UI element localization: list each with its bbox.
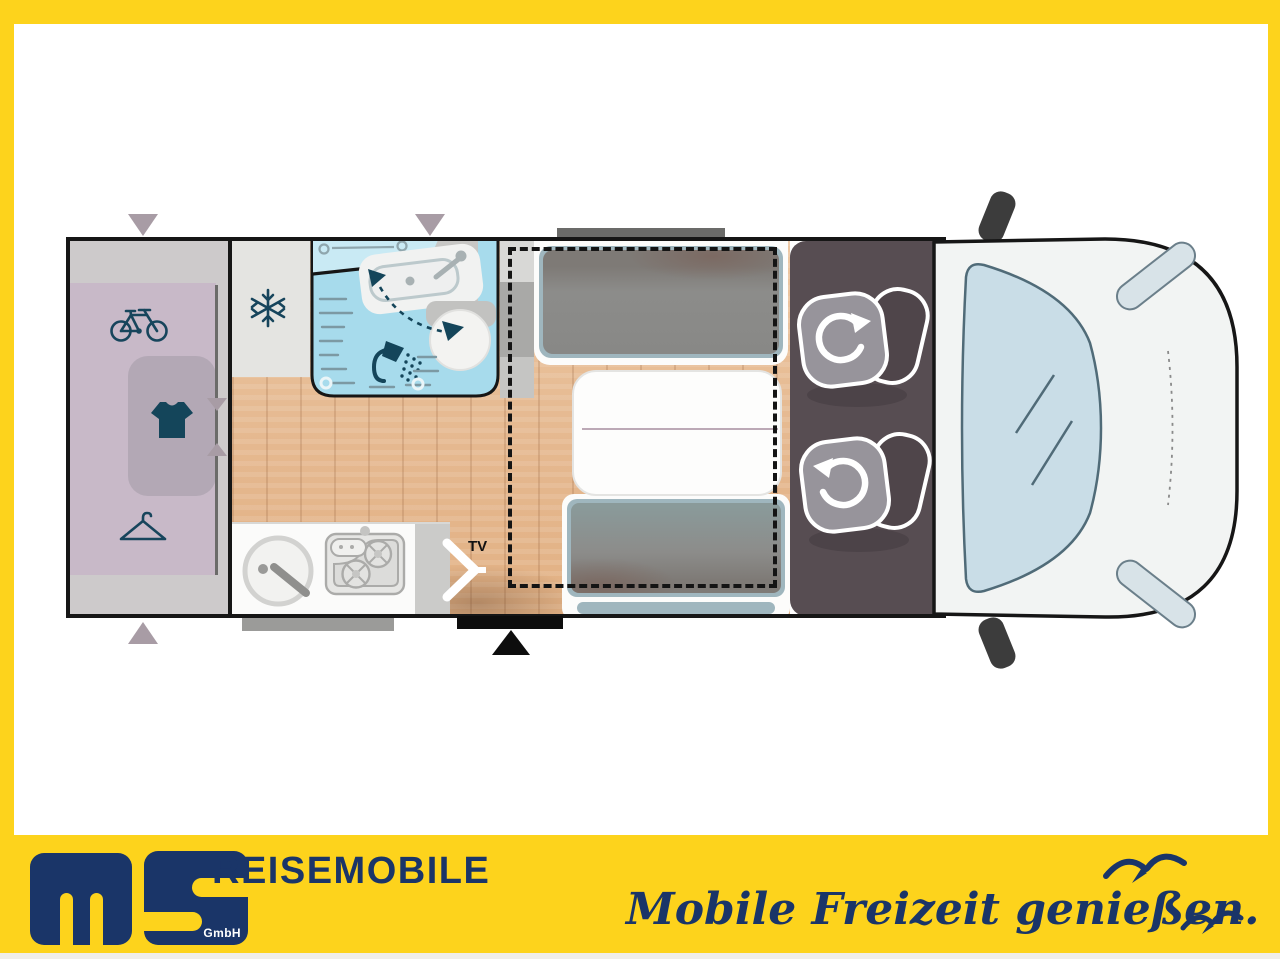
swivel-seat-icon — [793, 283, 941, 409]
frame-border — [0, 0, 14, 959]
vehicle-front — [920, 185, 1250, 685]
bicycle-icon — [110, 300, 168, 342]
footer-bottom-strip — [0, 953, 1280, 959]
stove-icon — [326, 526, 404, 594]
hanger-icon — [118, 510, 168, 544]
seagull-icon — [1180, 906, 1244, 938]
snowflake-icon — [246, 286, 290, 330]
garage-divider-line — [215, 285, 218, 575]
seagull-icon — [1103, 848, 1187, 888]
tv-label: TV — [468, 538, 487, 555]
mirror-icon — [975, 614, 1019, 672]
bathroom — [310, 237, 500, 399]
entrance-arrow-icon — [492, 630, 530, 655]
mirror-icon — [975, 188, 1019, 246]
tagline: Mobile Freizeit genießen. — [626, 884, 1259, 935]
kitchen-sink-icon — [245, 538, 311, 604]
slide-arrow-icon — [207, 443, 227, 456]
slide-arrow-icon — [207, 398, 227, 411]
window-arrow-icon — [128, 622, 158, 644]
frame-border — [0, 0, 1280, 24]
wall — [66, 237, 70, 618]
kitchen-block — [230, 522, 450, 618]
ms-logo-m — [30, 853, 132, 945]
entry-step — [242, 618, 394, 631]
logo-gmbh-label: GmbH — [203, 926, 241, 940]
bench-step-pad — [577, 602, 775, 614]
tshirt-icon — [151, 402, 193, 438]
wall — [66, 237, 946, 241]
motorhome-floorplan-advert: TV GmbH — [0, 0, 1280, 959]
brand-line: REISEMOBILE — [212, 850, 490, 893]
wall — [228, 237, 232, 618]
window-arrow-icon — [128, 214, 158, 236]
entrance-door — [457, 616, 563, 629]
frame-border — [1268, 0, 1280, 959]
window-arrow-icon — [415, 214, 445, 236]
drop-down-bed-outline — [508, 247, 777, 588]
toilet-icon — [430, 310, 490, 370]
